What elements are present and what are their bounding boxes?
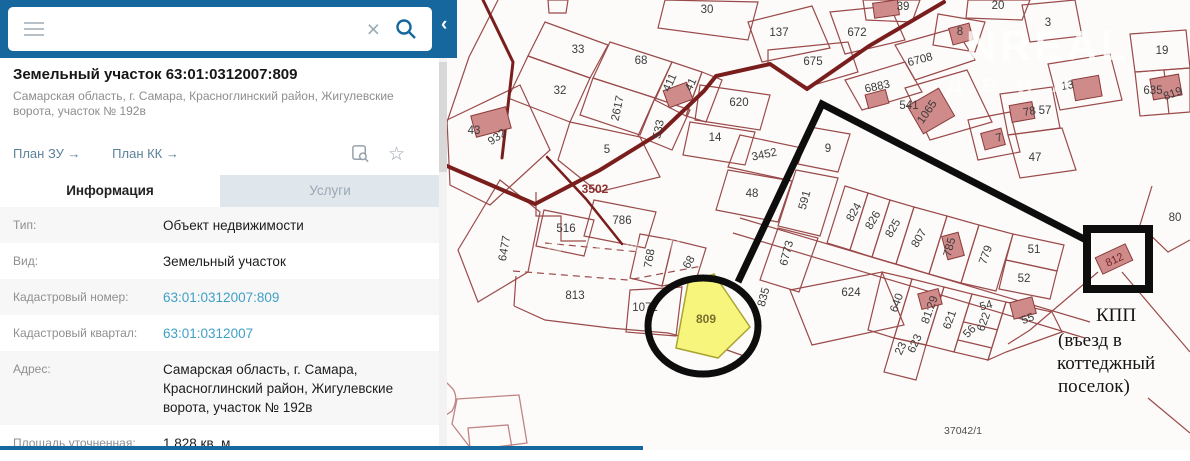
svg-text:533: 533: [651, 119, 667, 140]
svg-text:826: 826: [863, 209, 883, 232]
svg-text:19: 19: [1156, 45, 1169, 57]
svg-text:57: 57: [1039, 105, 1052, 117]
sidebar-scrollbar[interactable]: [439, 58, 447, 446]
info-panel: × ‹ Земельный участок 63:01:0312007:809 …: [0, 0, 447, 450]
svg-text:635: 635: [1143, 85, 1162, 97]
kpp-label: КПП(въезд вкоттеджныйпоселок): [1057, 305, 1155, 397]
svg-text:33: 33: [572, 44, 585, 56]
svg-text:672: 672: [847, 27, 866, 39]
svg-text:786: 786: [612, 215, 631, 227]
svg-text:20: 20: [992, 0, 1005, 12]
favorite-star-icon[interactable]: ☆: [388, 146, 405, 164]
svg-text:NREAL: NREAL: [966, 22, 1131, 69]
svg-text:622: 622: [975, 311, 993, 333]
parcel-title: Земельный участок 63:01:0312007:809: [13, 66, 423, 83]
svg-text:14: 14: [709, 132, 722, 144]
svg-text:6477: 6477: [497, 235, 513, 262]
svg-text:30: 30: [701, 4, 714, 16]
svg-text:621: 621: [941, 309, 959, 331]
svg-text:3502: 3502: [582, 182, 609, 196]
svg-text:9: 9: [825, 143, 831, 155]
cadastral-quarter-link[interactable]: 63:01:0312007: [163, 324, 425, 343]
info-row-cadastral-quarter: Кадастровый квартал: 63:01:0312007: [0, 315, 440, 351]
plan-links: План ЗУ → План КК → ☆: [13, 146, 433, 161]
svg-text:поселок): поселок): [1058, 376, 1130, 397]
svg-text:39: 39: [897, 1, 910, 13]
svg-text:КПП: КПП: [1096, 305, 1136, 326]
svg-text:47: 47: [1029, 152, 1042, 164]
svg-text:779: 779: [977, 244, 995, 266]
svg-text:137: 137: [769, 27, 788, 39]
svg-text:3452: 3452: [751, 147, 779, 164]
preview-document-icon[interactable]: [351, 144, 370, 166]
tab-services[interactable]: Услуги: [220, 175, 440, 207]
info-row-kind: Вид: Земельный участок: [0, 243, 440, 279]
cadastral-map[interactable]: 4393233326826175334114153013767267539670…: [440, 0, 1190, 450]
clear-icon[interactable]: ×: [367, 14, 380, 44]
svg-text:541: 541: [899, 100, 918, 112]
search-input[interactable]: ×: [8, 7, 432, 51]
svg-text:52: 52: [1018, 273, 1031, 285]
svg-text:коттеджный: коттеджный: [1057, 353, 1155, 374]
info-row-type: Тип: Объект недвижимости: [0, 207, 440, 243]
tab-information[interactable]: Информация: [0, 175, 220, 207]
svg-text:37042/1: 37042/1: [944, 425, 982, 437]
svg-text:48: 48: [746, 188, 759, 200]
search-bar: × ‹: [0, 0, 457, 58]
bottom-bar: [0, 446, 643, 450]
svg-text:591: 591: [797, 189, 814, 211]
plan-zu-link[interactable]: План ЗУ →: [13, 146, 81, 161]
map-area[interactable]: 4393233326826175334114153013767267539670…: [440, 0, 1190, 450]
svg-text:813: 813: [565, 290, 584, 302]
svg-text:8: 8: [957, 26, 963, 38]
svg-text:675: 675: [803, 56, 822, 68]
menu-icon[interactable]: [24, 22, 44, 36]
watermark: NREALд в и жд в и ж: [545, 22, 1131, 258]
svg-text:807: 807: [909, 227, 929, 250]
scrollbar-thumb[interactable]: [439, 62, 447, 172]
search-icon[interactable]: [394, 17, 418, 46]
svg-text:825: 825: [883, 217, 903, 240]
svg-text:43: 43: [468, 125, 481, 137]
svg-text:78: 78: [1022, 105, 1037, 119]
outlying-parcels: [440, 376, 527, 450]
svg-text:51: 51: [1028, 244, 1041, 256]
tab-bar: Информация Услуги: [0, 175, 440, 207]
svg-text:620: 620: [729, 97, 748, 109]
collapse-sidebar-icon[interactable]: ‹: [441, 14, 447, 36]
info-rows: Тип: Объект недвижимости Вид: Земельный …: [0, 207, 440, 461]
svg-text:2617: 2617: [610, 95, 627, 123]
svg-text:д в и ж: д в и ж: [946, 68, 1077, 98]
plan-kk-link[interactable]: План КК →: [112, 146, 179, 161]
svg-text:624: 624: [841, 287, 861, 299]
info-row-area: Площадь уточненная: 1 828 кв. м: [0, 425, 440, 461]
parcel-address-summary: Самарская область, г. Самара, Красноглин…: [13, 89, 415, 119]
svg-text:80: 80: [1169, 212, 1182, 224]
svg-text:(въезд в: (въезд в: [1058, 330, 1122, 351]
svg-text:32: 32: [554, 85, 567, 97]
info-row-address: Адрес: Самарская область, г. Самара, Кра…: [0, 351, 440, 425]
svg-text:6773: 6773: [778, 239, 796, 267]
svg-text:809: 809: [696, 312, 716, 326]
svg-text:640: 640: [888, 292, 906, 314]
svg-text:5: 5: [604, 144, 610, 156]
svg-text:6708: 6708: [906, 51, 934, 69]
svg-text:6883: 6883: [864, 79, 892, 96]
svg-text:д в и ж: д в и ж: [545, 228, 690, 258]
cadastral-number-link[interactable]: 63:01:0312007:809: [163, 288, 425, 307]
info-row-cadastral-number: Кадастровый номер: 63:01:0312007:809: [0, 279, 440, 315]
svg-text:68: 68: [635, 55, 648, 67]
svg-text:835: 835: [756, 286, 773, 308]
